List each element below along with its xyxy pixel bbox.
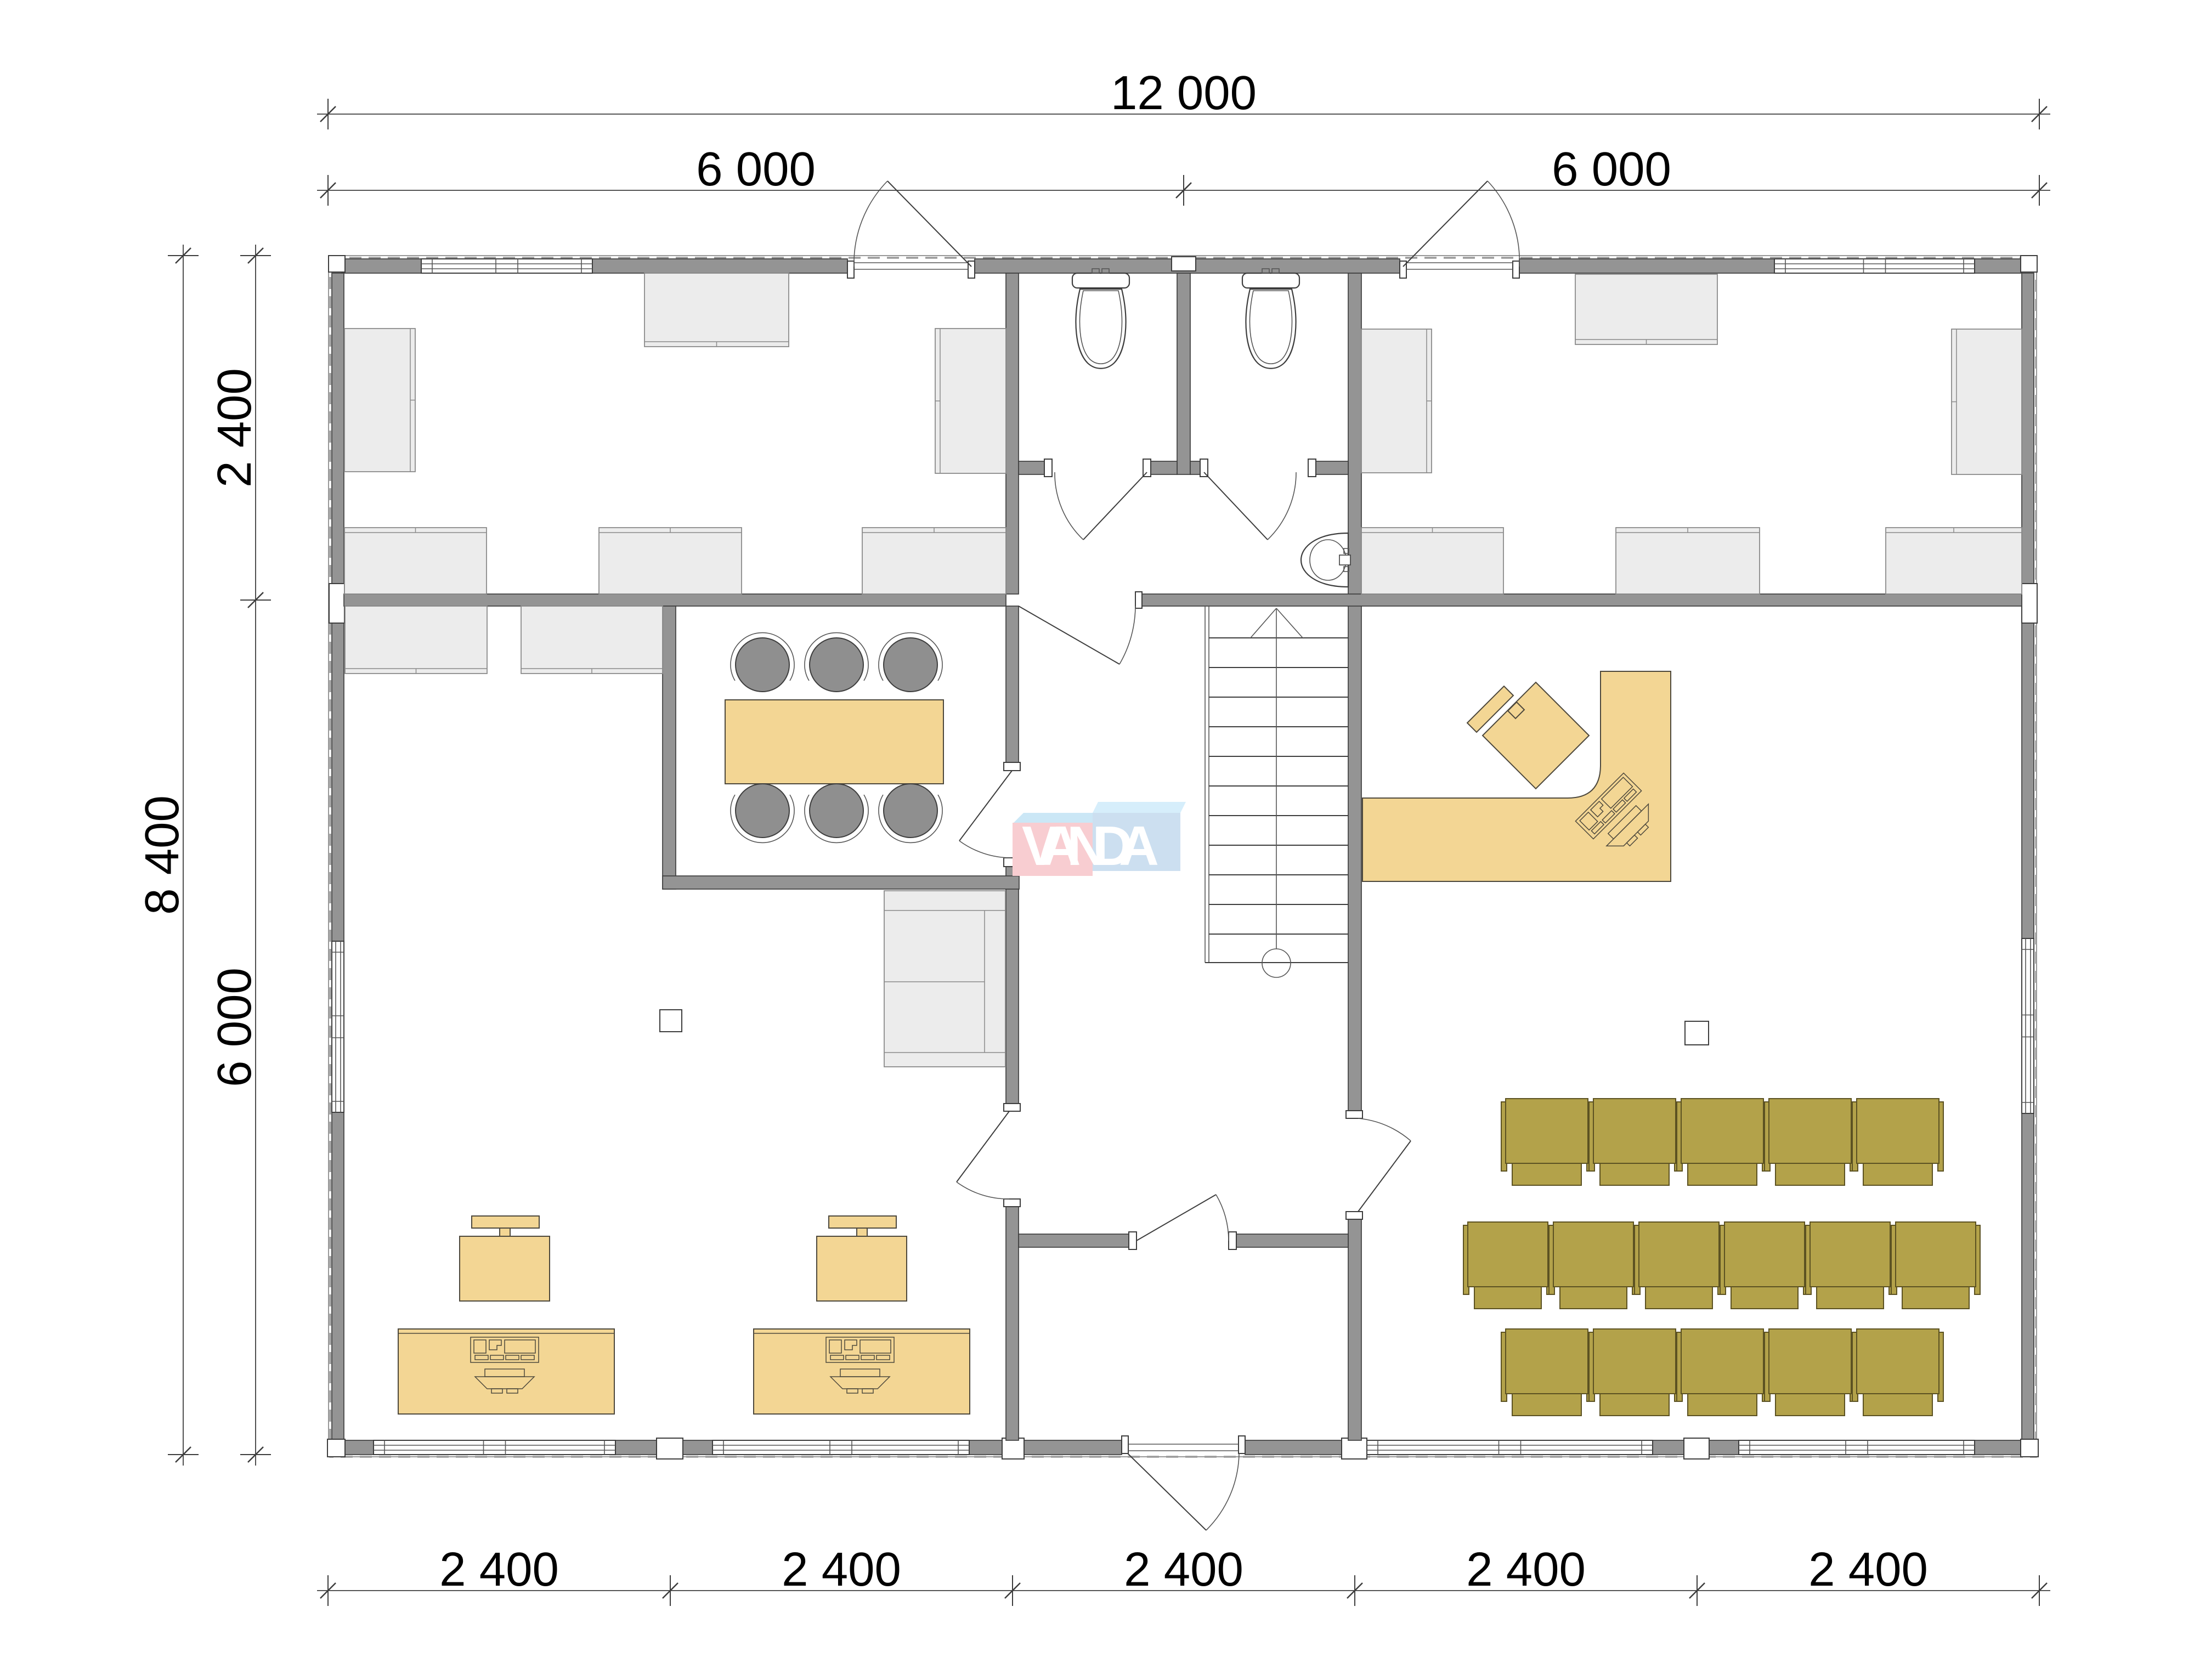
svg-text:2 400: 2 400 (208, 368, 261, 488)
svg-text:2 400: 2 400 (1124, 1543, 1243, 1596)
svg-text:6 000: 6 000 (696, 143, 816, 196)
svg-text:2 400: 2 400 (1466, 1543, 1586, 1596)
svg-text:12 000: 12 000 (1111, 66, 1257, 120)
svg-text:6 000: 6 000 (208, 968, 261, 1087)
svg-text:6 000: 6 000 (1552, 143, 1671, 196)
svg-text:2 400: 2 400 (1808, 1543, 1928, 1596)
svg-text:VANDA: VANDA (1022, 816, 1159, 877)
svg-text:8 400: 8 400 (135, 795, 189, 915)
svg-text:2 400: 2 400 (782, 1543, 901, 1596)
svg-text:2 400: 2 400 (439, 1543, 559, 1596)
